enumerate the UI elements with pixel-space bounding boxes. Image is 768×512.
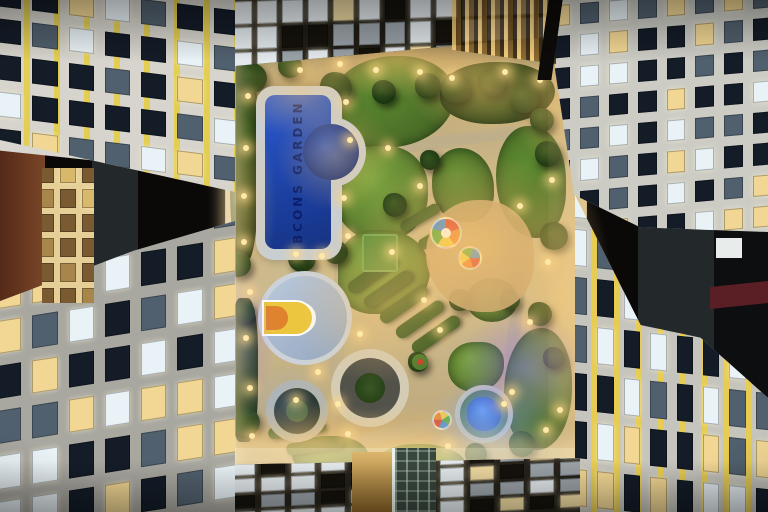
window [724,145,743,168]
window [177,77,202,105]
south-passage-glass-roof [392,448,436,512]
ring-plaza-tree [355,373,385,403]
window [69,305,94,342]
window [724,114,743,137]
window [624,330,640,369]
window [609,155,628,178]
path-light [293,397,299,403]
window [235,52,252,66]
window [32,447,57,484]
window [333,0,354,21]
tree [415,73,441,99]
window [667,0,686,17]
window [597,423,613,462]
window [214,463,235,500]
path-light [315,369,321,375]
window [42,214,54,233]
window [609,0,628,22]
window [695,210,714,232]
window [235,27,252,50]
window [638,153,657,176]
white-utility-box [716,238,742,258]
path-light [297,67,303,73]
window [677,432,693,471]
window [105,435,130,472]
window [729,389,745,428]
path-light [243,335,249,341]
window [695,54,714,77]
window [580,95,599,118]
window [580,64,599,87]
window [69,63,94,91]
path-light [319,253,325,259]
window [235,494,255,509]
window [756,440,768,479]
window [580,33,599,56]
window [141,249,166,286]
window [308,24,329,47]
path-light [293,251,299,257]
window [753,205,768,228]
window [60,288,76,303]
path-light [345,233,351,239]
window [0,54,21,82]
window [291,491,315,506]
window [0,91,21,119]
window [141,215,166,241]
window [32,0,57,13]
window [141,430,166,467]
window [291,475,315,490]
window [69,0,94,18]
window [105,345,130,382]
window [703,386,719,425]
window [82,288,94,303]
window [560,494,580,509]
window [667,88,686,111]
path-light [385,145,391,151]
tree [232,408,260,436]
path-light [373,67,379,73]
window [575,276,587,315]
window [69,351,94,388]
window [359,0,380,20]
window [257,26,278,49]
window [261,493,285,508]
window [177,379,202,416]
window [638,59,657,82]
window [624,378,640,417]
window [42,288,54,303]
path-light [247,385,253,391]
window [177,469,202,506]
pool-floor-label: BCONS GARDEN [265,95,331,249]
window [69,441,94,478]
window [32,22,57,50]
window [575,324,587,363]
window [105,300,130,337]
window [261,477,285,492]
window [753,0,768,9]
window [609,30,628,53]
window [32,402,57,439]
window [667,119,686,142]
window [60,168,76,183]
window [695,85,714,108]
window [756,392,768,431]
window [385,21,406,44]
window [69,396,94,433]
window [177,3,202,31]
window [597,375,613,414]
path-light [249,433,255,439]
window [0,498,21,512]
window [638,90,657,113]
window [60,238,76,257]
path-light [341,195,347,201]
apartment-building-top-right [555,0,768,232]
window [105,0,130,22]
window [214,44,235,72]
window [282,25,303,48]
window [69,27,94,55]
window [82,263,94,282]
path-light [449,75,455,81]
window [141,182,166,200]
window [82,189,94,208]
window [580,1,599,24]
window [141,475,166,512]
window [214,81,235,109]
window [42,238,54,257]
window [609,61,628,84]
window [650,477,666,512]
window [235,1,252,24]
window [440,467,464,482]
path-light [347,137,353,143]
window [32,356,57,393]
window [597,279,613,318]
window [235,478,255,493]
window [105,481,130,512]
path-light [437,327,443,333]
window [69,486,94,512]
window [470,466,494,481]
path-light [247,289,253,295]
window [624,426,640,465]
window [32,492,57,512]
window [0,317,21,354]
window [410,0,431,18]
window [609,124,628,147]
window [321,474,345,489]
window [32,311,57,348]
path-light [243,145,249,151]
window [308,0,329,22]
window [440,484,464,499]
window [42,189,54,208]
path-light [335,401,341,407]
window [141,72,166,100]
window [177,288,202,325]
window [695,0,714,14]
window [724,176,743,199]
window [724,51,743,74]
window [677,384,693,423]
window [177,187,202,200]
window [695,116,714,139]
window [0,18,21,46]
tree [233,301,255,323]
south-passage-gold-wall [352,452,392,512]
window [667,181,686,204]
pond-water [467,397,501,431]
window [60,214,76,233]
window [695,23,714,46]
window [82,238,94,257]
window [141,384,166,421]
window [214,373,235,410]
window [177,40,202,68]
window [177,150,202,178]
window [753,80,768,103]
window [695,148,714,171]
window [597,231,613,270]
window [410,20,431,43]
window [667,56,686,79]
window [753,49,768,72]
window [177,215,202,235]
window [141,109,166,137]
window [470,498,494,512]
window [667,150,686,173]
window [560,477,580,492]
window [638,0,657,19]
window [667,25,686,48]
window [82,214,94,233]
window [214,118,235,146]
tree [383,193,407,217]
window [214,418,235,455]
window [724,20,743,43]
path-light [417,183,423,189]
window [0,0,21,9]
window [580,126,599,149]
window [703,482,719,512]
window [214,282,235,319]
window [638,121,657,144]
small-circle-bush [286,400,308,422]
window [385,0,406,19]
path-light [527,319,533,325]
window [32,96,57,124]
aerial-courtyard-photo: BCONS GARDEN [0,0,768,512]
window [214,154,235,182]
window [609,93,628,116]
window [753,143,768,166]
window [321,506,345,512]
window [597,471,613,510]
window [69,137,94,165]
window [638,184,657,207]
window [500,464,524,479]
window [530,495,554,510]
window [500,497,524,512]
window [42,263,54,282]
window [575,372,587,411]
window [214,328,235,365]
window [609,186,628,209]
window [530,479,554,494]
window [756,488,768,512]
window [609,218,628,232]
window [753,18,768,41]
playground-carousel [458,246,482,270]
window [214,237,235,274]
path-light [241,239,247,245]
window [470,482,494,497]
path-light [337,61,343,67]
window [257,0,278,23]
path-light [502,69,508,75]
window [703,434,719,473]
window [440,500,464,512]
window [555,35,570,58]
window [105,68,130,96]
path-light [417,69,423,75]
window [729,485,745,512]
window [677,480,693,512]
window [141,339,166,376]
path-light [343,99,349,105]
window [69,100,94,128]
tree [420,150,440,170]
window [724,83,743,106]
window [60,263,76,282]
path-light [501,401,507,407]
window [0,453,21,490]
window [177,113,202,141]
window [753,174,768,197]
path-light [509,389,515,395]
window [638,28,657,51]
window [677,336,693,375]
playground-climber-center [441,228,451,238]
window [105,104,130,132]
window [729,437,745,476]
window [650,381,666,420]
window [42,168,54,183]
window [141,146,166,174]
window [560,461,580,476]
playground-slide-top [417,359,423,365]
window [724,208,743,231]
tree [441,73,471,103]
window [530,463,554,478]
window [580,158,599,181]
window [695,179,714,202]
path-light [345,431,351,437]
window [0,362,21,399]
path-light [517,203,523,209]
window [359,22,380,45]
window [177,333,202,370]
window [60,189,76,208]
path-light [357,331,363,337]
window [105,31,130,59]
window-grid [42,168,94,303]
path-light [389,249,395,255]
window [753,111,768,134]
window [291,508,315,512]
tree [372,80,396,104]
window [141,294,166,331]
window [575,228,587,267]
window [141,0,166,27]
window [214,8,235,36]
path-light [245,93,251,99]
window [575,420,587,459]
window [105,390,130,427]
window [141,36,166,64]
window [650,429,666,468]
window [597,327,613,366]
window [177,243,202,280]
window [177,424,202,461]
window [500,480,524,495]
window-grid [555,0,768,232]
path-light [241,193,247,199]
window [650,333,666,372]
window [724,0,743,12]
window [32,59,57,87]
window [624,474,640,512]
window [82,168,94,183]
window [282,0,303,23]
window [0,407,21,444]
window [321,490,345,505]
window [333,23,354,46]
path-light [421,297,427,303]
distant-lit-building [42,168,94,303]
